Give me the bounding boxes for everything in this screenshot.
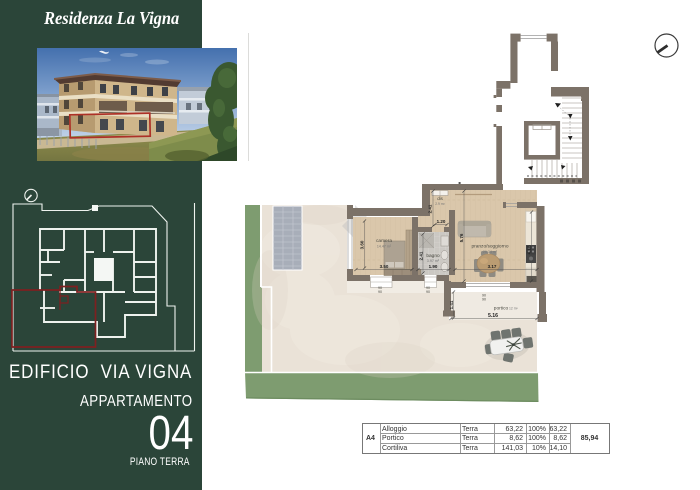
- svg-text:3.97 m²: 3.97 m²: [427, 259, 440, 263]
- svg-text:14.47 m²: 14.47 m²: [377, 245, 392, 249]
- svg-text:90: 90: [482, 298, 486, 302]
- svg-text:1.90: 1.90: [429, 264, 438, 269]
- svg-text:5.16: 5.16: [488, 313, 498, 319]
- svg-text:dis: dis: [437, 196, 443, 201]
- svg-text:12 m²: 12 m²: [509, 307, 519, 311]
- svg-text:1.20: 1.20: [437, 219, 446, 224]
- svg-text:90: 90: [426, 290, 430, 294]
- svg-text:3.50: 3.50: [380, 264, 389, 269]
- svg-text:1.41: 1.41: [449, 300, 454, 309]
- svg-text:5.76: 5.76: [459, 233, 464, 242]
- svg-text:2.41: 2.41: [428, 204, 433, 213]
- svg-text:3.17: 3.17: [488, 264, 497, 269]
- svg-text:2.9 m²: 2.9 m²: [435, 202, 445, 206]
- svg-text:4.16: 4.16: [527, 245, 532, 254]
- svg-text:26.34 m²: 26.34 m²: [483, 250, 498, 254]
- svg-text:pranzo/soggiorno: pranzo/soggiorno: [471, 244, 508, 250]
- svg-text:2.41: 2.41: [419, 251, 424, 260]
- svg-text:camera: camera: [376, 238, 392, 244]
- svg-text:portico: portico: [494, 306, 509, 312]
- svg-text:3.60: 3.60: [360, 240, 365, 249]
- svg-text:90: 90: [378, 290, 382, 294]
